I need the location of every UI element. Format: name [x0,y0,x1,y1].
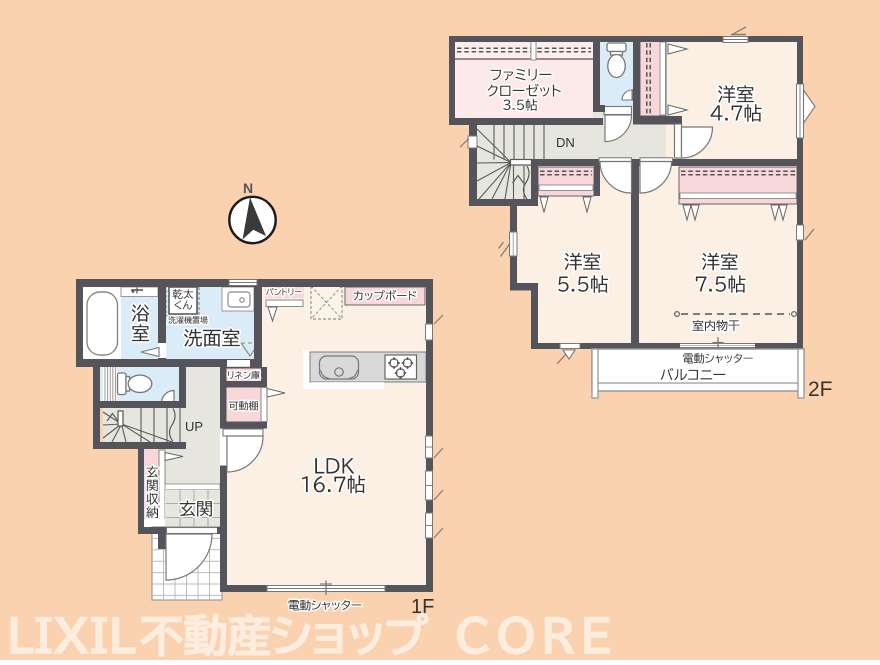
svg-text:2F: 2F [808,378,833,401]
svg-text:N: N [243,180,253,196]
svg-text:DN: DN [556,135,575,150]
svg-text:UP: UP [185,419,203,434]
